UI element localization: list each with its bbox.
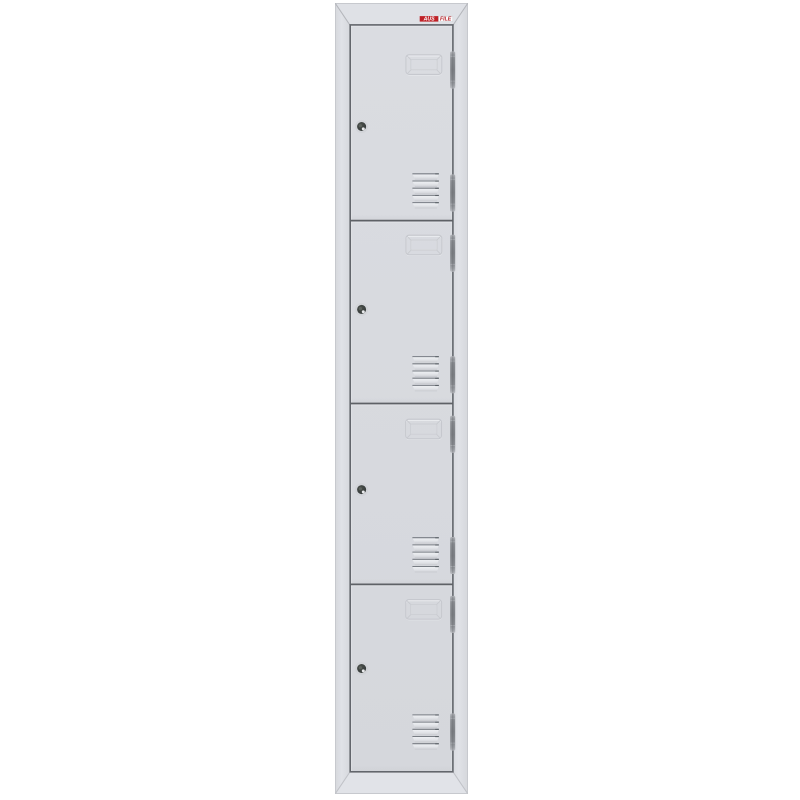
svg-text:AUS: AUS: [423, 17, 435, 23]
svg-text:FILE: FILE: [440, 17, 452, 23]
